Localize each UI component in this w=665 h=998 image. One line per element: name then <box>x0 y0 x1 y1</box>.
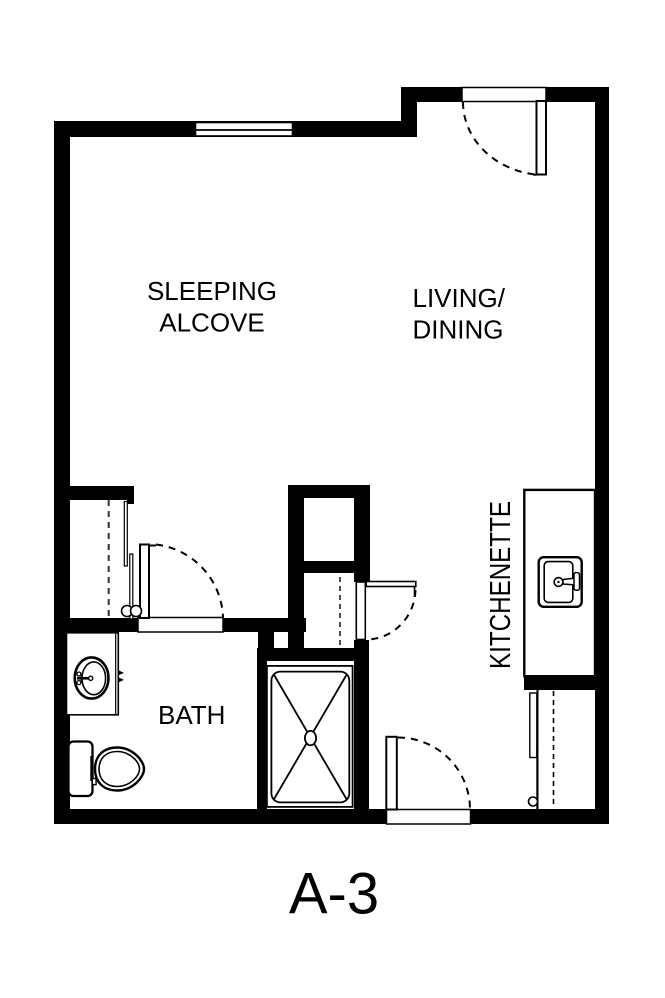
svg-text:ALCOVE: ALCOVE <box>159 308 265 338</box>
svg-text:KITCHENETTE: KITCHENETTE <box>485 501 517 669</box>
svg-text:SLEEPING: SLEEPING <box>147 276 277 306</box>
svg-text:DINING: DINING <box>413 315 504 345</box>
svg-text:LIVING/: LIVING/ <box>413 283 506 313</box>
svg-text:A-3: A-3 <box>289 862 379 927</box>
svg-text:BATH: BATH <box>158 700 225 730</box>
